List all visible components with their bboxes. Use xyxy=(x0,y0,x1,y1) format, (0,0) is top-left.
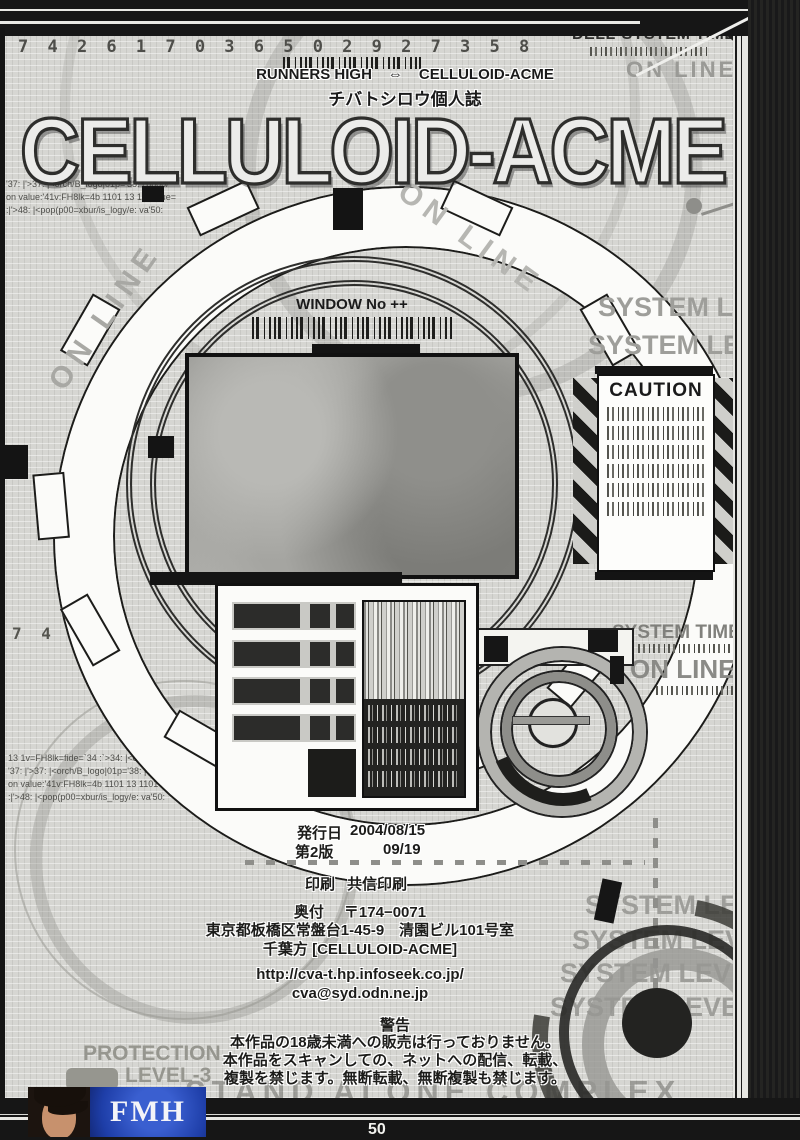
panel-bar xyxy=(595,366,713,374)
barcode xyxy=(607,445,705,459)
online-side-label: ON LINE xyxy=(630,654,735,685)
decor-square xyxy=(333,188,363,230)
decor-line xyxy=(0,9,800,11)
decor-square xyxy=(142,186,164,202)
address-line-1: 東京都板橋区常盤台1-45-9 清園ビル101号室 xyxy=(150,919,570,940)
printer-label: 印刷 xyxy=(305,873,335,894)
barcode xyxy=(607,407,705,421)
emblem-bracket xyxy=(588,630,618,652)
barcode xyxy=(368,727,460,743)
circle-name-right: CELLULOID-ACME xyxy=(419,66,554,83)
caution-card: CAUTION xyxy=(597,374,715,572)
ink-blob xyxy=(308,749,356,797)
decor-square xyxy=(148,436,174,458)
barcode xyxy=(368,771,460,787)
data-bar xyxy=(232,640,356,668)
fmh-logo-face-image xyxy=(28,1087,90,1137)
fmh-logo: FMH xyxy=(28,1087,206,1137)
decor-line xyxy=(735,36,737,1140)
doujin-colophon-page: '37: |'>37: |<orch/B_logo|01p='38: |'pb0… xyxy=(0,0,800,1140)
data-bar xyxy=(232,714,356,742)
emblem-bracket xyxy=(484,636,508,662)
hazard-stripes xyxy=(573,378,597,564)
barcode xyxy=(607,502,705,516)
data-bar xyxy=(232,677,356,705)
barcode xyxy=(656,686,740,695)
exchange-arrow-icon: ⇔ xyxy=(388,66,403,83)
page-number: 50 xyxy=(368,1121,386,1139)
barcode xyxy=(368,705,460,721)
barcode-box xyxy=(362,600,466,798)
emblem-bar xyxy=(512,716,590,725)
printer-name: 共信印刷 xyxy=(347,873,407,894)
lens-core xyxy=(622,988,692,1058)
issue-date-value: 2004/08/15 xyxy=(350,822,425,839)
barcode xyxy=(607,483,705,497)
barcode xyxy=(368,749,460,765)
panel-bar xyxy=(595,572,713,580)
barcode xyxy=(607,426,705,440)
warning-line: 複製を禁じます。無断転載、無断複製も禁じます。 xyxy=(165,1067,625,1088)
decor-line xyxy=(741,36,742,1140)
edition-date-value: 09/19 xyxy=(383,841,421,858)
barcode xyxy=(364,602,464,699)
page-title: CELLULOID-ACME xyxy=(0,98,745,206)
address-line-2: 千葉方 [CELLULOID-ACME] xyxy=(150,938,570,959)
barcode-dark-block xyxy=(364,699,464,796)
barcode xyxy=(607,464,705,478)
fmh-logo-text: FMH xyxy=(90,1087,206,1137)
top-border-band xyxy=(0,0,800,36)
edition-label: 第2版 xyxy=(295,841,333,862)
artwork-image xyxy=(185,353,519,579)
serial-digits: 7 4 2 6 1 7 0 3 6 5 0 2 9 2 7 3 5 8 xyxy=(18,37,529,57)
right-border-band xyxy=(748,0,800,1140)
barcode xyxy=(252,317,452,339)
email-text: cva@syd.odn.ne.jp xyxy=(150,985,570,1002)
barcode xyxy=(638,644,738,653)
decor-line xyxy=(0,21,640,24)
gear-tooth xyxy=(32,472,70,541)
serial-digits-left: 7 4 xyxy=(12,624,51,643)
caution-panel: CAUTION xyxy=(573,368,735,574)
window-number-label: WINDOW No ++ xyxy=(252,296,452,313)
emblem-bracket xyxy=(610,656,624,684)
data-panel xyxy=(215,583,479,811)
caution-label: CAUTION xyxy=(599,380,713,402)
left-border-line xyxy=(0,28,5,1140)
issue-date-label: 発行日 xyxy=(297,822,342,843)
circle-name-left: RUNNERS HIGH xyxy=(256,66,372,83)
website-url-text: http://cva-t.hp.infoseek.co.jp/ xyxy=(150,966,570,983)
header-line: RUNNERS HIGH⇔CELLULOID-ACME xyxy=(175,66,635,83)
data-bar xyxy=(232,602,356,630)
